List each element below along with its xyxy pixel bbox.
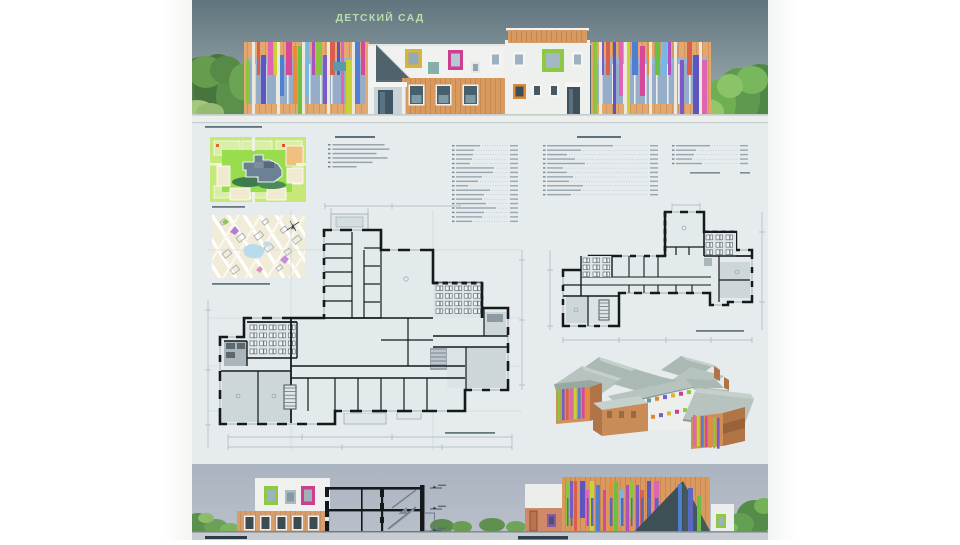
svg-text:ДЕТСКИЙ САД: ДЕТСКИЙ САД xyxy=(336,11,425,24)
